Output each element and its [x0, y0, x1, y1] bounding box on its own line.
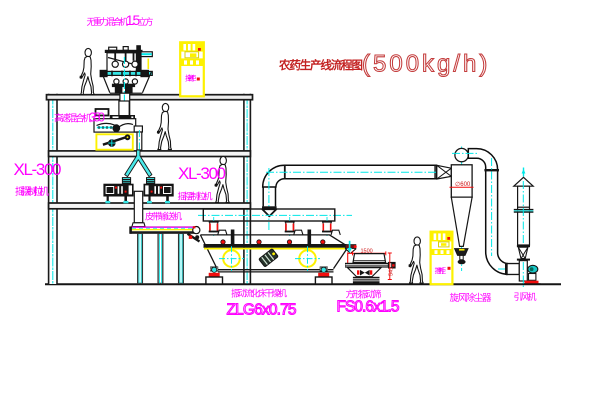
svg-text:旋风除尘器: 旋风除尘器	[450, 292, 492, 304]
svg-text:∅600: ∅600	[455, 181, 471, 188]
svg-text:XL-300: XL-300	[178, 164, 226, 183]
svg-text:摇摆制粒机: 摇摆制粒机	[178, 191, 213, 202]
svg-text:XL-300: XL-300	[14, 160, 62, 179]
svg-text:农药生产线流程图: 农药生产线流程图	[278, 58, 362, 72]
svg-text:控制柜: 控制柜	[185, 74, 197, 83]
svg-text:摇摆制粒机: 摇摆制粒机	[15, 185, 49, 198]
svg-text:控制柜: 控制柜	[435, 266, 447, 275]
svg-text:振动流化床干燥机: 振动流化床干燥机	[231, 288, 287, 299]
svg-text:ZLG6x0.75: ZLG6x0.75	[227, 302, 297, 319]
svg-text:皮带输送机: 皮带输送机	[145, 211, 182, 222]
svg-text:高速混合机350: 高速混合机350	[54, 111, 105, 125]
svg-text:(500kg/h): (500kg/h)	[362, 51, 490, 78]
svg-text:FS0.6x1.5: FS0.6x1.5	[337, 299, 400, 316]
svg-text:541: 541	[389, 267, 395, 276]
svg-text:引风机: 引风机	[514, 291, 537, 302]
